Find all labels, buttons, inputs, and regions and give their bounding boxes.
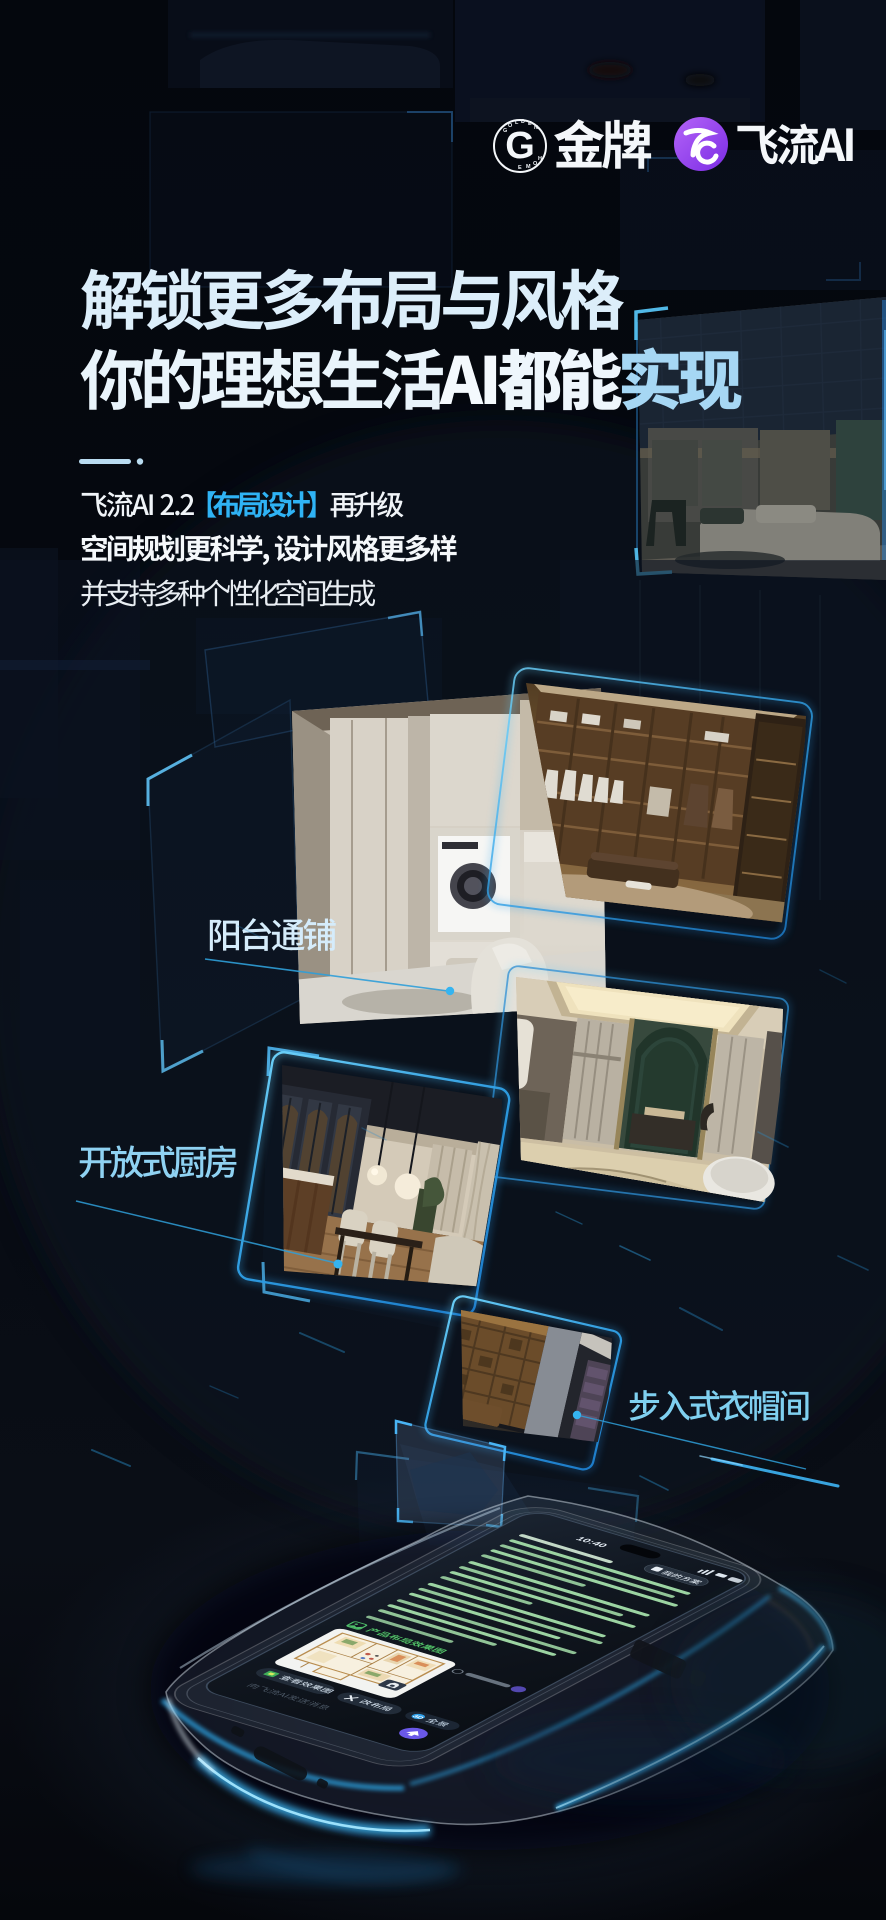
svg-text:O: O xyxy=(533,161,538,167)
svg-text:M: M xyxy=(526,164,531,170)
svg-text:E: E xyxy=(528,121,532,127)
svg-text:N: N xyxy=(534,125,538,131)
svg-text:E: E xyxy=(518,165,522,171)
svg-text:D: D xyxy=(521,119,525,125)
svg-text:G: G xyxy=(503,128,507,134)
svg-text:G: G xyxy=(505,125,535,167)
svg-text:H: H xyxy=(538,156,542,162)
svg-text:O: O xyxy=(508,123,513,129)
